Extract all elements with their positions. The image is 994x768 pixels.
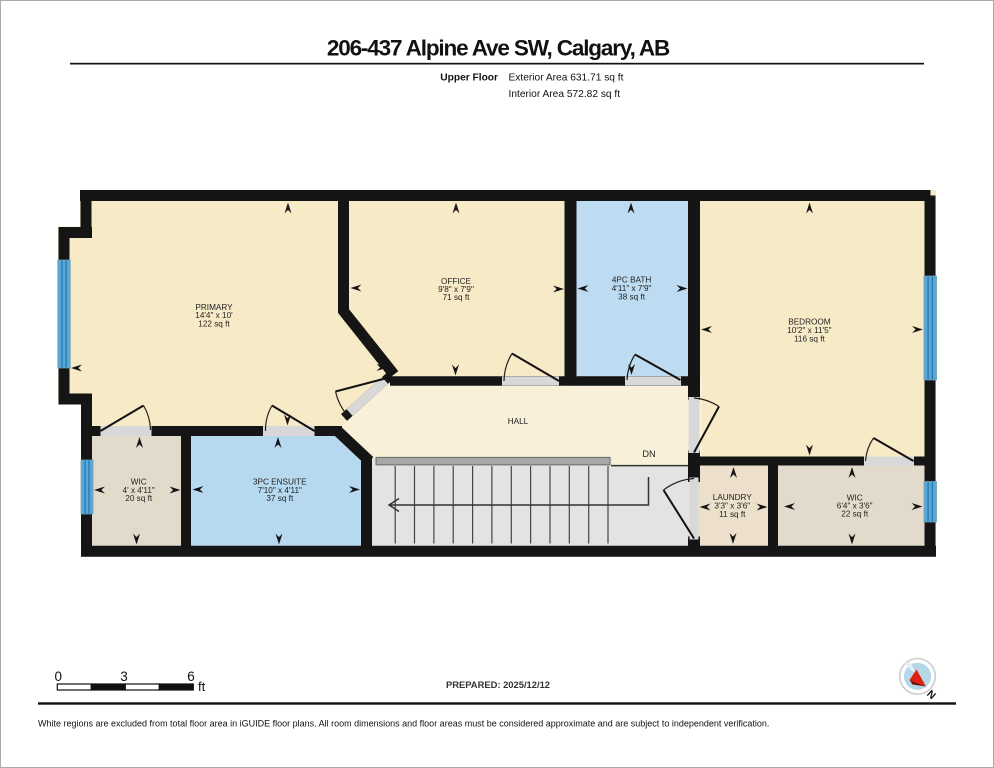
svg-text:6: 6 (187, 669, 195, 684)
svg-text:HALL: HALL (508, 417, 529, 426)
svg-text:38 sq ft: 38 sq ft (618, 293, 646, 302)
svg-text:PREPARED: 2025/12/12: PREPARED: 2025/12/12 (446, 679, 550, 690)
svg-text:0: 0 (55, 669, 63, 684)
svg-text:22 sq ft: 22 sq ft (841, 509, 869, 518)
svg-text:206-437 Alpine Ave SW, Calgary: 206-437 Alpine Ave SW, Calgary, AB (327, 36, 670, 61)
svg-text:Upper Floor: Upper Floor (440, 73, 498, 84)
svg-text:White regions are excluded fro: White regions are excluded from total fl… (38, 719, 769, 729)
svg-text:37 sq ft: 37 sq ft (266, 494, 294, 503)
svg-text:116 sq ft: 116 sq ft (794, 335, 826, 344)
svg-text:71 sq ft: 71 sq ft (443, 293, 471, 302)
svg-text:3: 3 (120, 669, 128, 684)
svg-text:20 sq ft: 20 sq ft (125, 494, 153, 503)
svg-text:11 sq ft: 11 sq ft (719, 510, 746, 519)
svg-text:ft: ft (198, 679, 206, 694)
svg-text:122 sq ft: 122 sq ft (198, 320, 230, 329)
svg-text:Interior Area 572.82 sq ft: Interior Area 572.82 sq ft (509, 89, 621, 100)
svg-text:DN: DN (642, 449, 655, 459)
svg-text:Exterior Area 631.71 sq ft: Exterior Area 631.71 sq ft (509, 73, 624, 84)
